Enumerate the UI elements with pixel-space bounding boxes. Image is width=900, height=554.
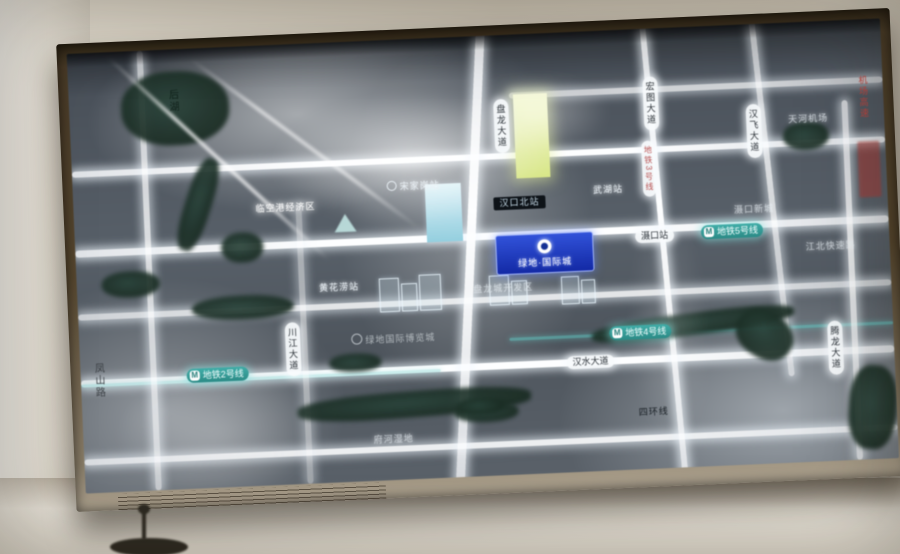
- road-pill-tenglong: 腾龙大道: [827, 320, 844, 375]
- metro-logo-icon: M: [704, 227, 714, 237]
- map-surface: 盘龙大道 宏图大道 汉飞大道 腾龙大道 川江大道 地铁3号线 汉水大道 滠口站 …: [67, 18, 899, 493]
- building-model: [581, 279, 596, 304]
- metro-line-4-badge: M 地铁4号线: [609, 324, 672, 341]
- photo-of-map-board: 盘龙大道 宏图大道 汉飞大道 腾龙大道 川江大道 地铁3号线 汉水大道 滠口站 …: [0, 0, 900, 554]
- label-sihuan: 四环线: [638, 404, 669, 418]
- building-model: [419, 274, 443, 311]
- label-jiangbei: 江北快速路: [805, 238, 856, 253]
- label-lake: 后湖: [164, 89, 180, 114]
- label-panlongcheng: 盘龙城开发区: [473, 280, 534, 296]
- foreground-object-top: [138, 504, 150, 514]
- metro-line-2-label: 地铁2号线: [202, 367, 244, 383]
- metro-line-5-label: 地铁5号线: [717, 223, 759, 239]
- red-text-block: [857, 141, 881, 198]
- label-fuhe: 府河湿地: [373, 431, 414, 446]
- metro-line-4-label: 地铁4号线: [625, 324, 667, 340]
- label-linkong: 临空港经济区: [255, 199, 316, 215]
- label-tianhe: 天河机场: [788, 111, 829, 126]
- label-songjiagang: 宋家岗站: [386, 178, 440, 193]
- foreground-object: [110, 538, 188, 554]
- road-pill-hanfei: 汉飞大道: [745, 104, 762, 159]
- label-fengshan-road: 凤山路: [90, 363, 107, 400]
- building-model: [401, 283, 418, 312]
- station-pill-shekou: 滠口站: [635, 229, 675, 244]
- project-logo-icon: [537, 239, 552, 254]
- label-huanghualao: 黄花涝站: [319, 279, 360, 294]
- river-shape: [221, 232, 264, 264]
- project-name: 绿地·国际城: [518, 254, 573, 269]
- poi-logo-icon: [351, 333, 362, 344]
- river-shape: [191, 293, 294, 321]
- label-shekou-newtown: 滠口新城: [734, 201, 775, 216]
- metro-line-3-badge: 地铁3号线: [641, 140, 656, 197]
- road-pill-chuanjiang: 川江大道: [285, 322, 302, 377]
- illuminated-map-board: 盘龙大道 宏图大道 汉飞大道 腾龙大道 川江大道 地铁3号线 汉水大道 滠口站 …: [56, 8, 900, 512]
- project-plaque: 绿地·国际城: [495, 231, 595, 275]
- building-model: [379, 278, 400, 313]
- river-shape: [846, 364, 899, 451]
- building-model: [561, 276, 580, 305]
- station-ring-icon: [386, 181, 396, 191]
- metro-line-2-badge: M 地铁2号线: [186, 366, 249, 383]
- station-badge-hankoubei: 汉口北站: [493, 195, 546, 210]
- road-pill-panlong: 盘龙大道: [493, 99, 510, 154]
- foreground-object-stem: [142, 510, 146, 540]
- metro-logo-icon: M: [612, 328, 622, 338]
- road-pill-hongtu: 宏图大道: [642, 76, 659, 131]
- label-poi-expo: 绿地国际博览城: [351, 330, 436, 347]
- label-airport-expwy: 机场高速: [856, 75, 871, 120]
- road-pill-hanshui: 汉水大道: [566, 354, 615, 369]
- metro-logo-icon: M: [190, 370, 200, 380]
- label-wuhu: 武湖站: [593, 182, 624, 196]
- metro-line-5-badge: M 地铁5号线: [701, 223, 764, 240]
